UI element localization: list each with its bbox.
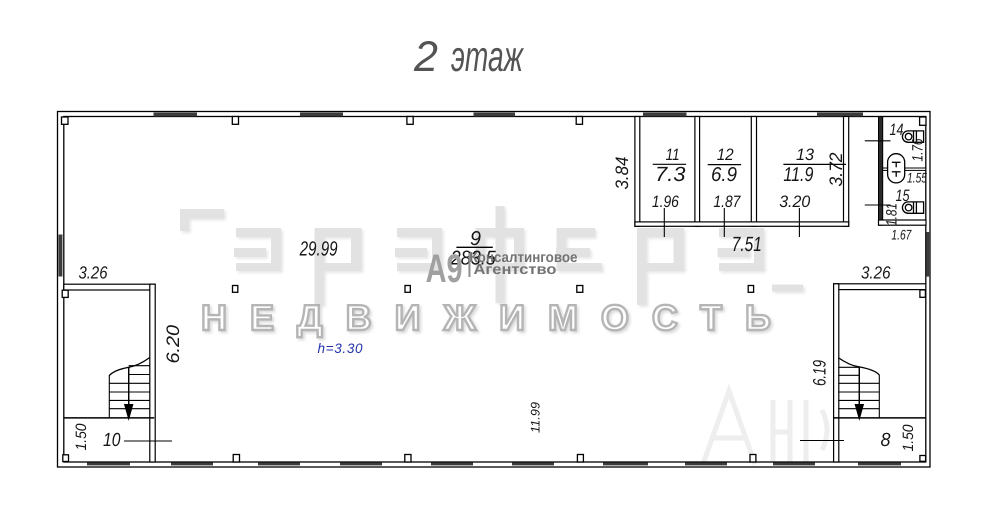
- svg-text:h=3.30: h=3.30: [318, 341, 363, 356]
